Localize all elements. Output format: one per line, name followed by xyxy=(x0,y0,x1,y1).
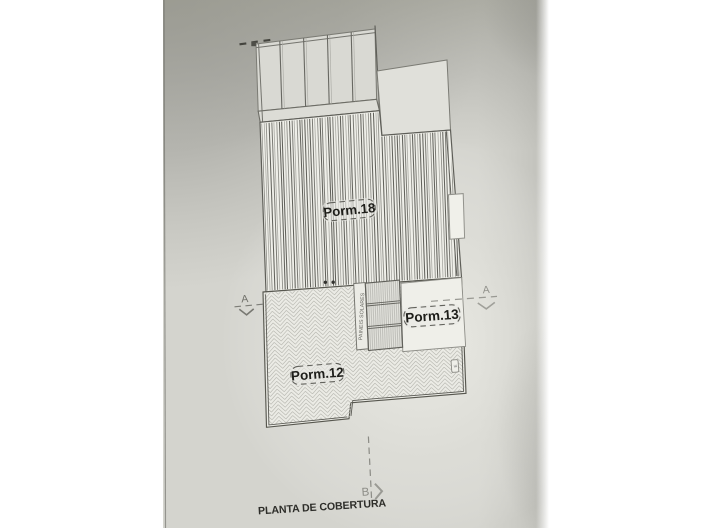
svg-text:A: A xyxy=(482,284,490,296)
svg-text:B: B xyxy=(361,486,370,499)
svg-text:E: E xyxy=(453,364,458,367)
svg-text:A: A xyxy=(241,293,249,305)
